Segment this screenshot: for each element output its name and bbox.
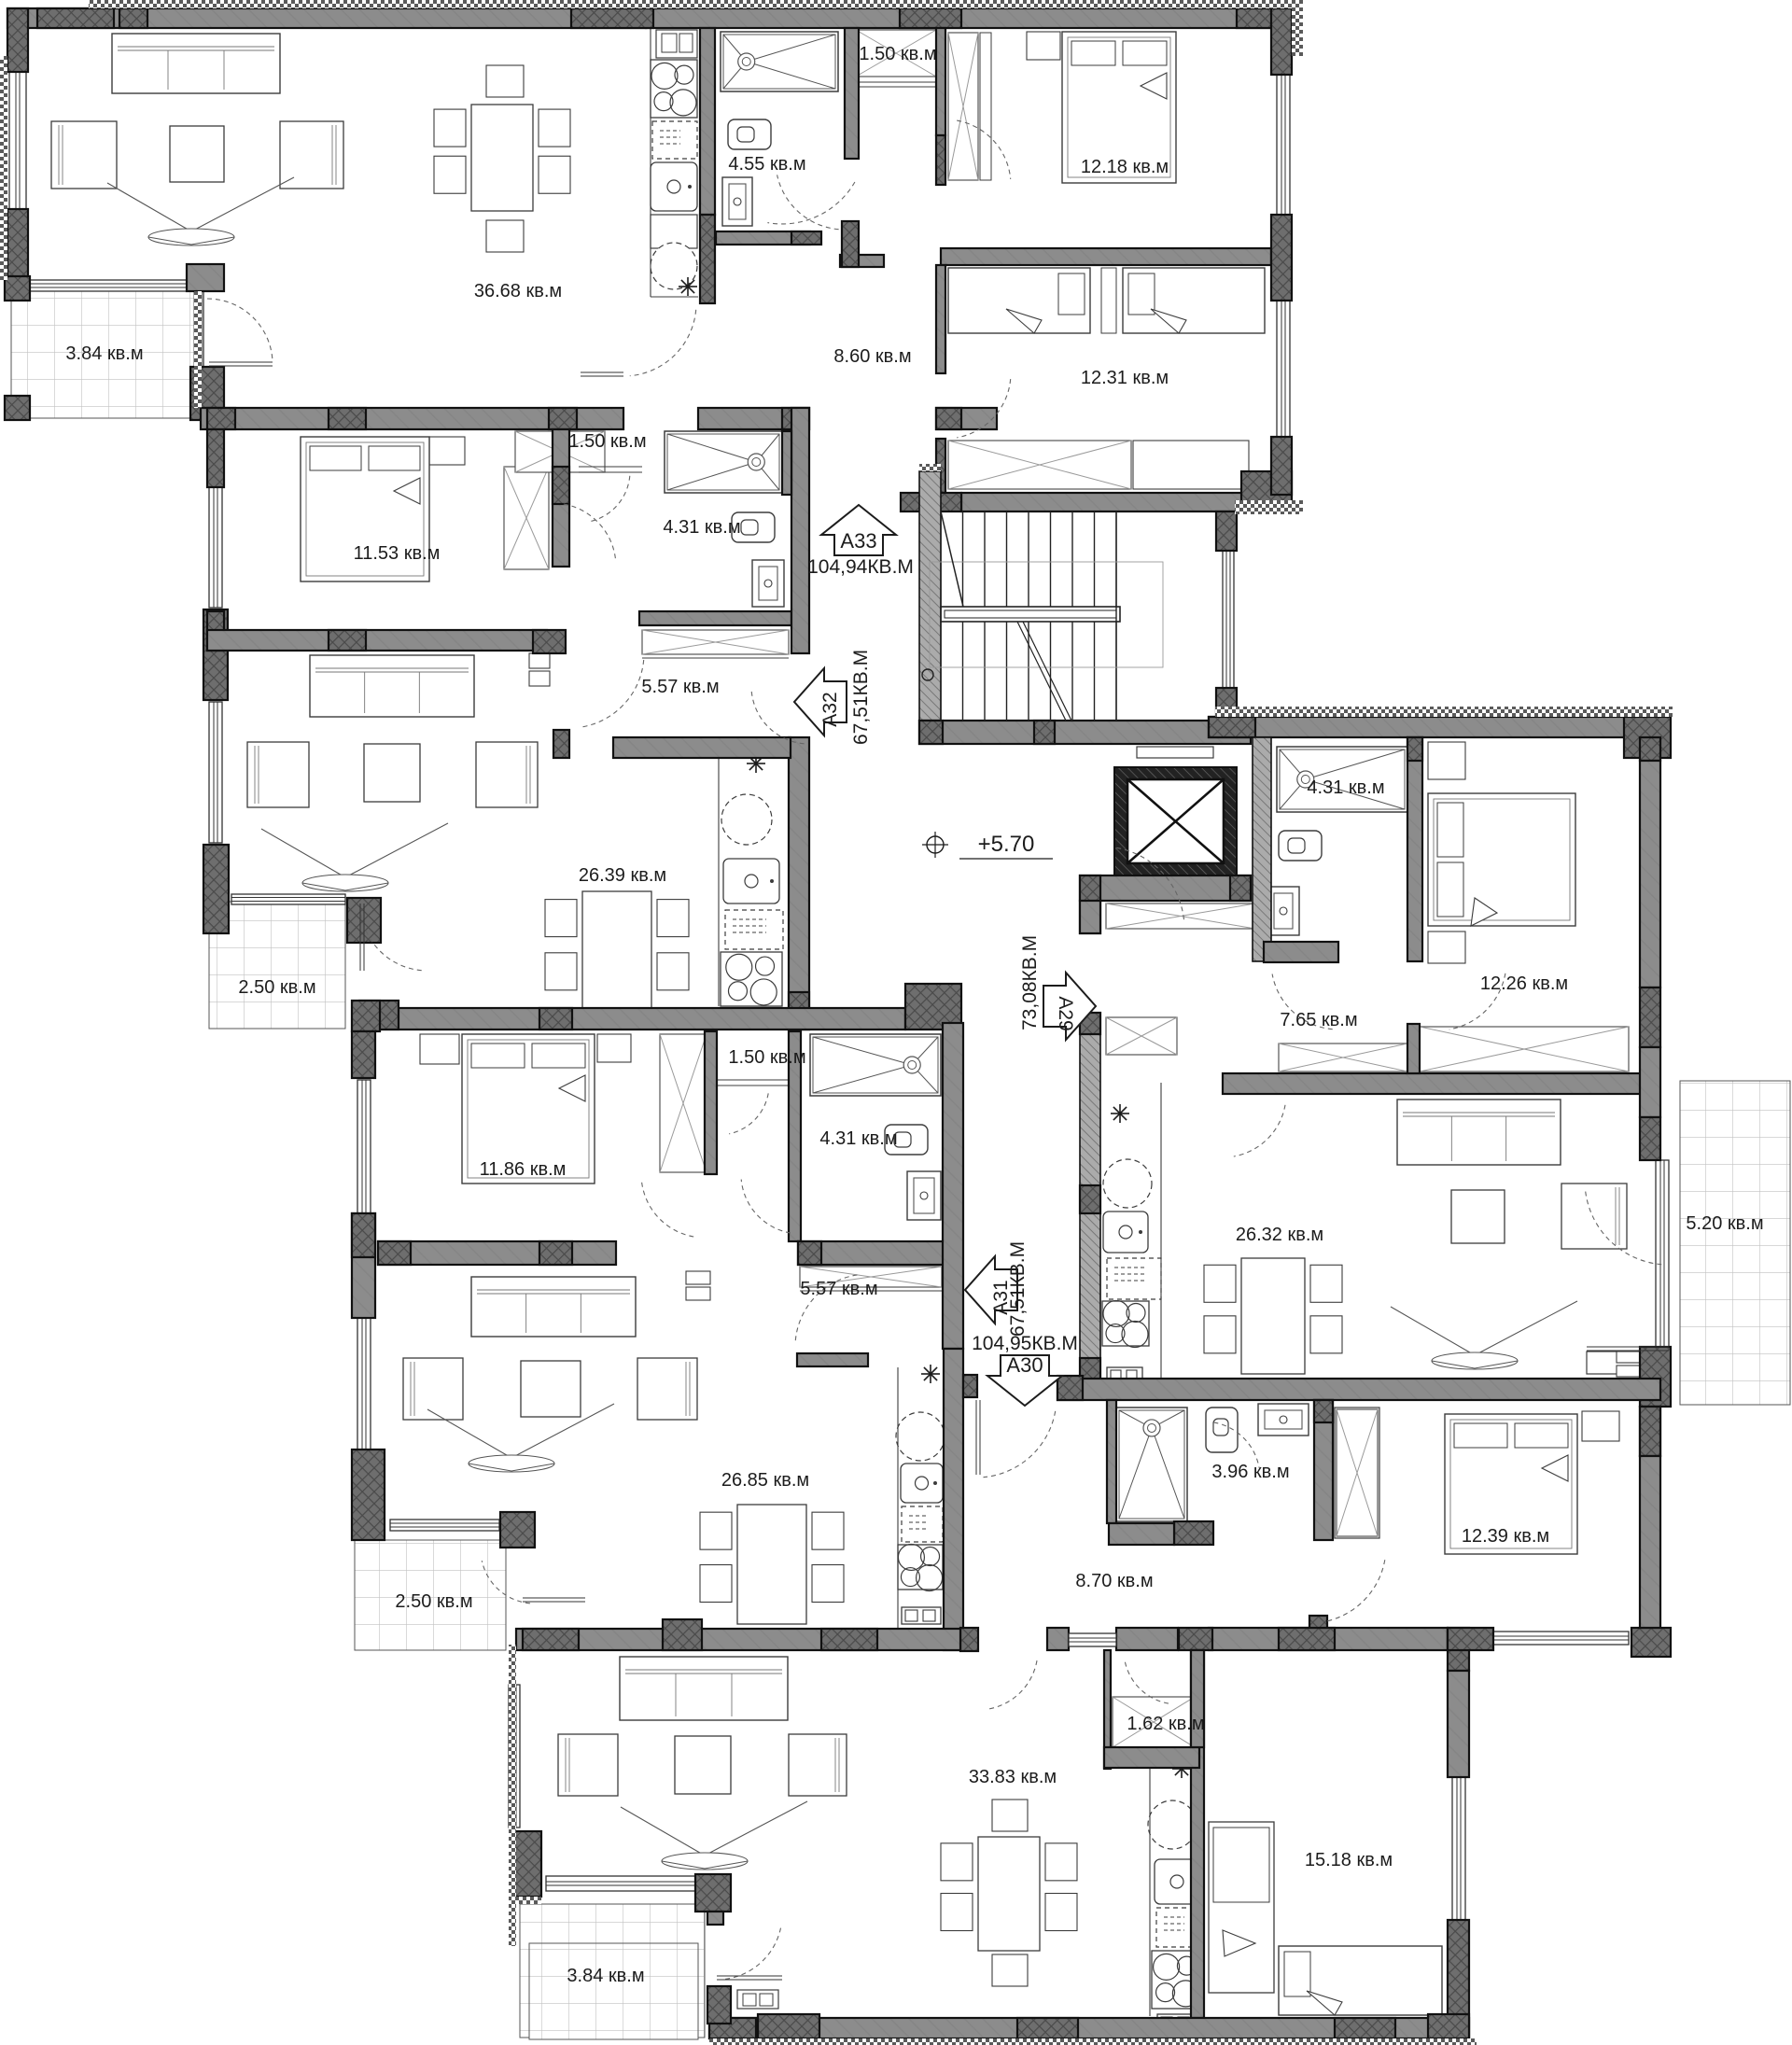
svg-text:A33: A33 [840,529,876,553]
svg-text:7.65 кв.м: 7.65 кв.м [1280,1010,1357,1030]
svg-text:4.31 кв.м: 4.31 кв.м [819,1128,897,1149]
svg-text:12.18 кв.м: 12.18 кв.м [1081,157,1169,177]
svg-text:12.39 кв.м: 12.39 кв.м [1462,1526,1549,1547]
svg-text:26.85 кв.м: 26.85 кв.м [721,1470,809,1491]
svg-text:8.60 кв.м: 8.60 кв.м [833,346,911,367]
svg-text:2.50 кв.м: 2.50 кв.м [395,1591,472,1612]
svg-text:4.55 кв.м: 4.55 кв.м [728,154,805,175]
svg-text:+5.70: +5.70 [978,832,1035,857]
svg-text:11.86 кв.м: 11.86 кв.м [480,1159,567,1180]
svg-text:A29: A29 [1055,996,1076,1030]
svg-text:73,08КВ.М: 73,08КВ.М [1019,935,1041,1030]
svg-text:12.26 кв.м: 12.26 кв.м [1480,973,1568,994]
svg-text:1.50 кв.м: 1.50 кв.м [859,44,936,64]
svg-text:11.53 кв.м: 11.53 кв.м [354,543,441,564]
svg-text:5.20 кв.м: 5.20 кв.м [1686,1213,1763,1234]
svg-text:26.39 кв.м: 26.39 кв.м [579,865,666,886]
svg-text:26.32 кв.м: 26.32 кв.м [1236,1225,1323,1245]
svg-text:A32: A32 [819,692,841,726]
svg-text:104,95КВ.М: 104,95КВ.М [972,1333,1078,1354]
svg-text:4.31 кв.м: 4.31 кв.м [663,517,740,538]
svg-text:3.84 кв.м: 3.84 кв.м [567,1966,644,1986]
svg-text:1.62 кв.м: 1.62 кв.м [1127,1714,1204,1734]
svg-text:4.31 кв.м: 4.31 кв.м [1307,777,1384,798]
svg-text:12.31 кв.м: 12.31 кв.м [1081,368,1169,388]
svg-text:3.96 кв.м: 3.96 кв.м [1211,1462,1289,1482]
svg-text:15.18 кв.м: 15.18 кв.м [1305,1850,1393,1870]
svg-text:104,94КВ.М: 104,94КВ.М [807,556,914,578]
svg-text:5.57 кв.м: 5.57 кв.м [800,1279,877,1299]
svg-text:67,51КВ.М: 67,51КВ.М [850,650,872,745]
svg-text:33.83 кв.м: 33.83 кв.м [969,1767,1057,1787]
svg-text:3.84 кв.м: 3.84 кв.м [65,343,143,364]
svg-text:1.50 кв.м: 1.50 кв.м [568,431,646,452]
svg-text:5.57 кв.м: 5.57 кв.м [641,677,719,697]
svg-text:8.70 кв.м: 8.70 кв.м [1075,1571,1153,1591]
svg-text:A30: A30 [1006,1353,1043,1377]
svg-text:36.68 кв.м: 36.68 кв.м [474,281,562,301]
svg-text:2.50 кв.м: 2.50 кв.м [238,977,315,998]
svg-text:1.50 кв.м: 1.50 кв.м [728,1047,805,1068]
svg-text:67,51КВ.М: 67,51КВ.М [1007,1241,1029,1337]
